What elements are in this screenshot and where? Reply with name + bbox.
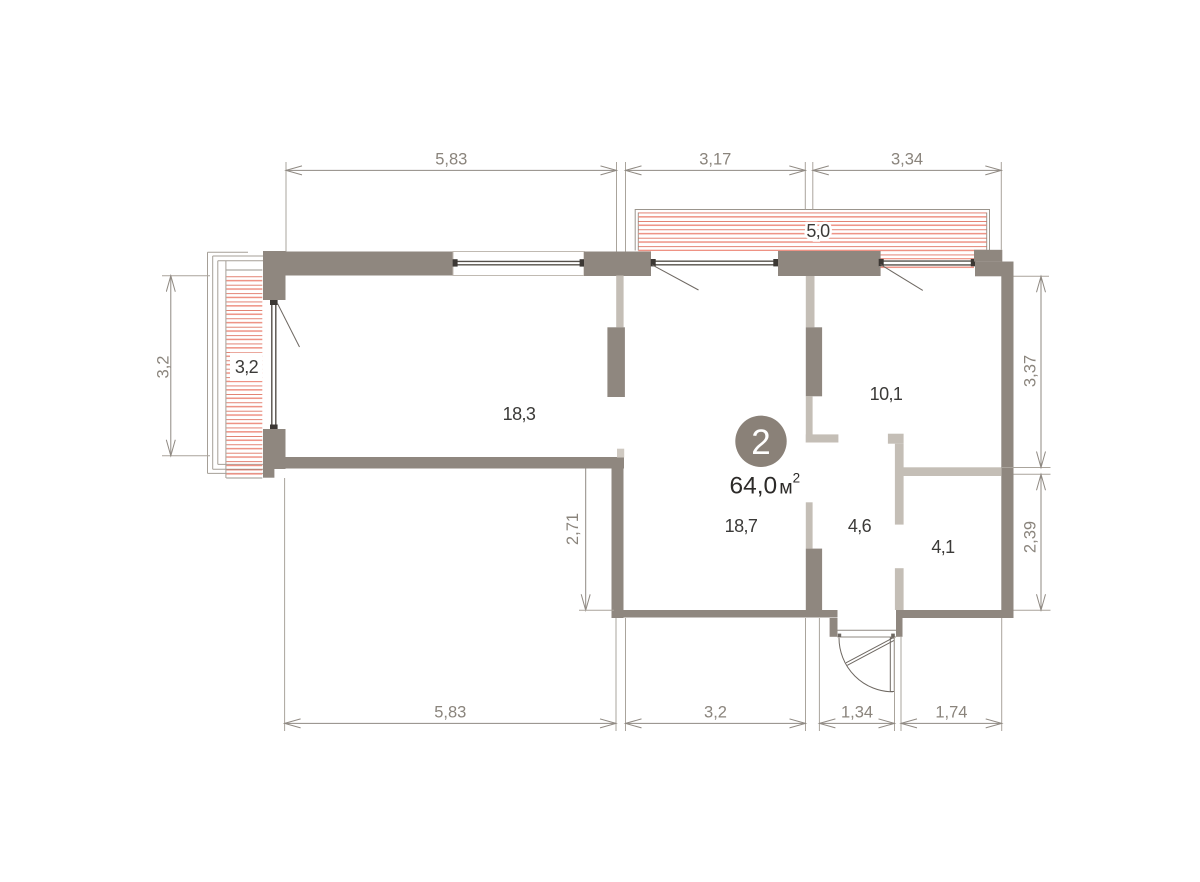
svg-text:5,83: 5,83 [435, 151, 467, 169]
svg-text:2,39: 2,39 [1022, 521, 1040, 553]
svg-text:10,1: 10,1 [870, 384, 903, 404]
svg-text:5,83: 5,83 [434, 704, 466, 722]
svg-text:2: 2 [751, 423, 770, 462]
svg-text:1,34: 1,34 [841, 704, 873, 722]
svg-text:3,37: 3,37 [1022, 355, 1040, 387]
svg-text:3,2: 3,2 [704, 704, 727, 722]
svg-text:2,71: 2,71 [564, 513, 582, 545]
svg-text:18,3: 18,3 [503, 404, 536, 424]
svg-text:1,74: 1,74 [935, 704, 967, 722]
svg-text:4,1: 4,1 [931, 537, 955, 557]
svg-text:18,7: 18,7 [725, 516, 758, 536]
svg-text:64,0м2: 64,0м2 [730, 471, 801, 500]
svg-text:5,0: 5,0 [806, 221, 830, 241]
svg-text:4,6: 4,6 [848, 516, 872, 536]
svg-text:3,34: 3,34 [891, 151, 923, 169]
svg-text:3,2: 3,2 [235, 357, 259, 377]
svg-text:3,17: 3,17 [699, 151, 731, 169]
svg-text:3,2: 3,2 [155, 356, 173, 379]
